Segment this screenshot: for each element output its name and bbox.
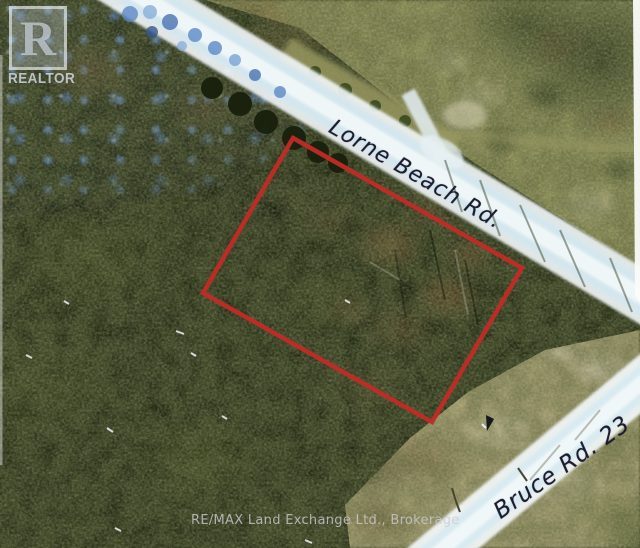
scan-margin-left (0, 55, 3, 465)
aerial-photo: R REALTOR Lorne Beach Rd. Bruce Rd. 23 R… (0, 0, 640, 548)
brokerage-watermark: RE/MAX Land Exchange Ltd., Brokerage (191, 513, 460, 528)
realtor-logo-r: R (20, 13, 56, 63)
realtor-logo-box: R (9, 6, 67, 70)
realtor-logo-text: REALTOR (8, 70, 69, 87)
realtor-logo: R REALTOR (8, 4, 76, 96)
